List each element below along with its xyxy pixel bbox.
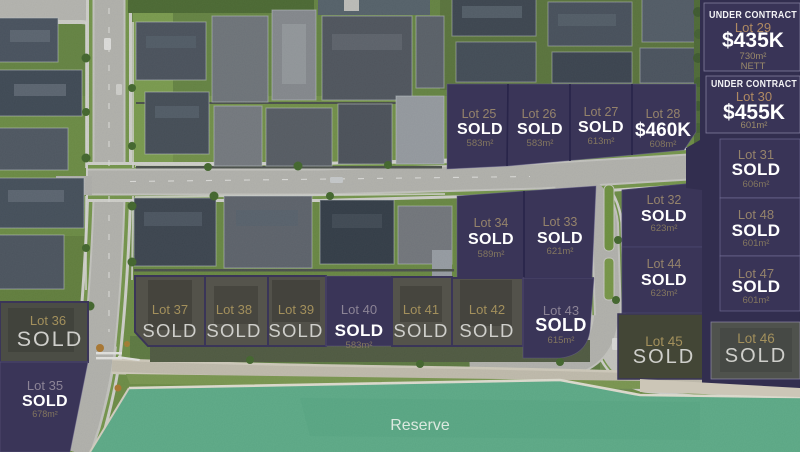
svg-text:Lot 34: Lot 34 [474, 216, 509, 230]
svg-text:583m²: 583m² [527, 138, 554, 149]
svg-text:SOLD: SOLD [459, 320, 514, 341]
svg-text:Lot 26: Lot 26 [522, 107, 557, 121]
svg-text:Lot 44: Lot 44 [647, 257, 682, 271]
svg-text:NETT: NETT [741, 61, 766, 72]
svg-text:Lot 46: Lot 46 [737, 331, 775, 346]
svg-text:Lot 39: Lot 39 [278, 302, 314, 317]
svg-text:SOLD: SOLD [725, 345, 787, 367]
svg-text:SOLD: SOLD [142, 320, 197, 341]
svg-text:SOLD: SOLD [17, 327, 84, 351]
svg-text:$435K: $435K [722, 29, 784, 52]
svg-text:SOLD: SOLD [537, 230, 583, 247]
svg-text:SOLD: SOLD [393, 320, 448, 341]
svg-text:SOLD: SOLD [535, 315, 587, 335]
svg-text:608m²: 608m² [650, 139, 677, 150]
svg-text:Lot 37: Lot 37 [152, 302, 188, 317]
svg-text:SOLD: SOLD [732, 160, 781, 179]
svg-text:615m²: 615m² [548, 335, 575, 346]
svg-text:Lot 28: Lot 28 [646, 107, 681, 121]
svg-text:Lot 41: Lot 41 [403, 302, 439, 317]
svg-text:623m²: 623m² [651, 288, 678, 299]
svg-text:613m²: 613m² [588, 136, 615, 147]
svg-text:Lot 32: Lot 32 [647, 193, 682, 207]
svg-text:Lot 42: Lot 42 [469, 302, 505, 317]
svg-text:Lot 36: Lot 36 [30, 313, 66, 328]
svg-text:SOLD: SOLD [22, 393, 68, 410]
svg-text:SOLD: SOLD [457, 121, 503, 138]
svg-text:583m²: 583m² [467, 138, 494, 149]
svg-text:623m²: 623m² [651, 223, 678, 234]
svg-text:Lot 35: Lot 35 [27, 378, 63, 393]
svg-text:SOLD: SOLD [578, 119, 624, 136]
svg-text:SOLD: SOLD [641, 272, 687, 289]
svg-text:$460K: $460K [635, 120, 691, 141]
svg-text:589m²: 589m² [478, 249, 505, 260]
svg-text:583m²: 583m² [346, 340, 373, 351]
svg-text:601m²: 601m² [741, 120, 768, 131]
svg-text:SOLD: SOLD [732, 277, 781, 296]
svg-text:678m²: 678m² [32, 409, 58, 419]
svg-text:Lot 33: Lot 33 [543, 215, 578, 229]
svg-text:601m²: 601m² [743, 238, 770, 249]
svg-text:Lot 38: Lot 38 [216, 302, 252, 317]
svg-text:SOLD: SOLD [468, 231, 514, 248]
svg-text:SOLD: SOLD [206, 320, 261, 341]
svg-text:Lot 25: Lot 25 [462, 107, 497, 121]
svg-text:Lot 27: Lot 27 [584, 105, 619, 119]
svg-text:606m²: 606m² [743, 179, 770, 190]
svg-text:601m²: 601m² [743, 295, 770, 306]
svg-text:SOLD: SOLD [517, 121, 563, 138]
svg-text:621m²: 621m² [547, 246, 574, 257]
svg-text:Lot 40: Lot 40 [341, 302, 377, 317]
svg-text:Lot 48: Lot 48 [738, 207, 774, 222]
svg-text:SOLD: SOLD [268, 320, 323, 341]
svg-text:SOLD: SOLD [633, 346, 695, 368]
svg-text:SOLD: SOLD [335, 321, 384, 340]
